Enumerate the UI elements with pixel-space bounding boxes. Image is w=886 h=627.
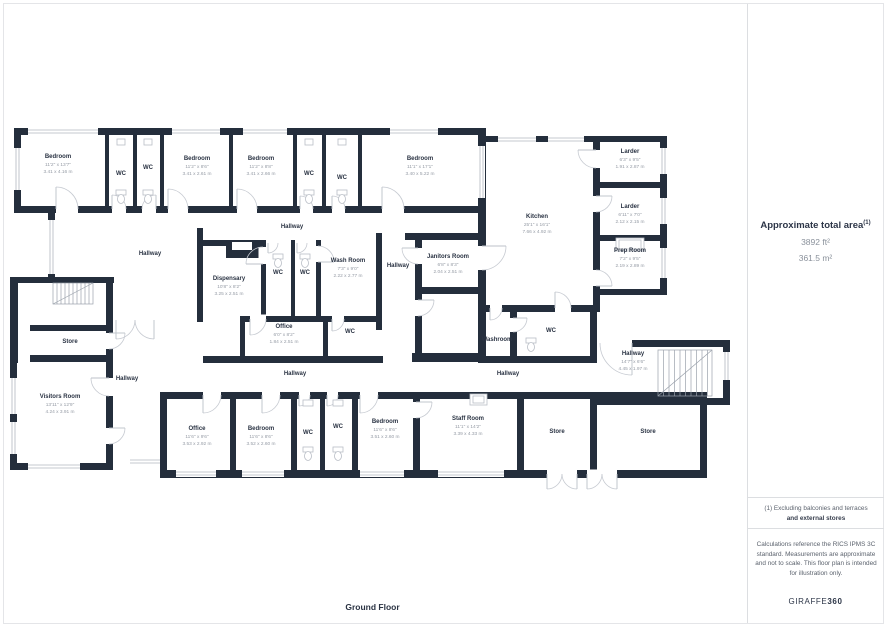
svg-text:11'1" x 14'2": 11'1" x 14'2"	[455, 424, 481, 430]
label-hallway: Hallway	[387, 263, 410, 269]
room-label-staff_room: Staff Room11'1" x 14'2"3.39 x 4.33 m	[452, 416, 484, 437]
room-label-bedroom_t2: Bedroom11'2" x 8'6"3.41 x 2.61 m	[182, 156, 211, 177]
label-store: Store	[640, 429, 656, 435]
svg-text:3.51 x 2.60 m: 3.51 x 2.60 m	[370, 434, 399, 440]
svg-text:Janitors Room: Janitors Room	[427, 254, 469, 260]
svg-text:3.39 x 4.33 m: 3.39 x 4.33 m	[453, 431, 482, 437]
footnote-marker: (1)	[863, 220, 870, 226]
label-hallway: Hallway	[497, 371, 520, 377]
room-label-bedroom_b2: Bedroom11'6" x 8'6"3.51 x 2.60 m	[370, 419, 399, 440]
svg-text:3.25 x 2.51 m: 3.25 x 2.51 m	[214, 291, 243, 297]
side-panel	[747, 4, 884, 623]
svg-text:7'2" x 9'5": 7'2" x 9'5"	[620, 256, 641, 262]
dispensary-counter-slot	[232, 242, 252, 250]
total-area-title: Approximate total area(1)	[747, 220, 884, 231]
room-label-dispensary: Dispensary10'8" x 8'2"3.25 x 2.51 m	[213, 276, 246, 297]
label-wc: WC	[300, 270, 311, 276]
svg-text:2.12 x 2.15 m: 2.12 x 2.15 m	[615, 219, 644, 225]
floor-plan-page: Bedroom11'2" x 13'7"3.41 x 4.16 mBedroom…	[0, 0, 886, 627]
svg-text:Staff Room: Staff Room	[452, 416, 484, 422]
svg-text:Bedroom: Bedroom	[184, 156, 210, 162]
svg-text:6'11" x 7'0": 6'11" x 7'0"	[618, 212, 642, 218]
walls	[10, 128, 730, 478]
room-label-wash_room: Wash Room7'3" x 9'0"2.22 x 2.77 m	[331, 258, 365, 279]
total-area-m: 361.5 m²	[747, 253, 884, 263]
svg-text:3.41 x 2.66 m: 3.41 x 2.66 m	[246, 171, 275, 177]
giraffe360-logo: GIRAFFE360	[747, 597, 884, 606]
disclaimer: Calculations reference the RICS IPMS 3C …	[754, 540, 878, 578]
total-area-ft: 3892 ft²	[747, 237, 884, 247]
label-wc: WC	[143, 165, 154, 171]
room-label-larder_2: Larder6'11" x 7'0"2.12 x 2.15 m	[615, 204, 644, 225]
label-store: Store	[62, 339, 78, 345]
svg-text:11'6" x 8'6": 11'6" x 8'6"	[249, 434, 273, 440]
svg-text:11'2" x 13'7": 11'2" x 13'7"	[45, 162, 71, 168]
svg-text:Office: Office	[188, 426, 206, 432]
svg-text:2.22 x 2.77 m: 2.22 x 2.77 m	[333, 273, 362, 279]
svg-text:2.04 x 2.51 m: 2.04 x 2.51 m	[433, 269, 462, 275]
room-label-bedroom_b1: Bedroom11'6" x 8'6"3.52 x 2.60 m	[246, 426, 275, 447]
svg-text:Bedroom: Bedroom	[45, 154, 71, 160]
svg-text:14'7" x 6'6": 14'7" x 6'6"	[621, 359, 645, 365]
room-label-larder_1: Larder6'3" x 9'5"1.91 x 2.87 m	[615, 149, 644, 170]
label-wc: WC	[116, 171, 127, 177]
svg-text:3.41 x 4.16 m: 3.41 x 4.16 m	[43, 169, 72, 175]
svg-text:Wash Room: Wash Room	[331, 258, 365, 264]
svg-text:Prep Room: Prep Room	[614, 248, 646, 254]
label-wc: WC	[546, 328, 557, 334]
footnote: (1) Excluding balconies and terraces and…	[752, 504, 880, 523]
svg-text:3.40 x 5.22 m: 3.40 x 5.22 m	[405, 171, 434, 177]
label-wc: WC	[333, 424, 344, 430]
svg-text:1.91 x 2.87 m: 1.91 x 2.87 m	[615, 164, 644, 170]
svg-text:Bedroom: Bedroom	[407, 156, 433, 162]
svg-text:6'0" x 8'2": 6'0" x 8'2"	[274, 332, 295, 338]
label-wc: WC	[345, 329, 356, 335]
svg-text:Office: Office	[275, 324, 293, 330]
label-wc: WC	[273, 270, 284, 276]
label-hallway: Hallway	[116, 376, 139, 382]
svg-text:4.45 x 1.97 m: 4.45 x 1.97 m	[618, 366, 647, 372]
svg-text:3.52 x 2.60 m: 3.52 x 2.60 m	[246, 441, 275, 447]
svg-text:1.84 x 2.51 m: 1.84 x 2.51 m	[269, 339, 298, 345]
floor-title: Ground Floor	[0, 602, 745, 612]
svg-text:Dispensary: Dispensary	[213, 276, 246, 282]
room-label-office_mid: Office6'0" x 8'2"1.84 x 2.51 m	[269, 324, 298, 345]
panel-divider	[747, 4, 748, 623]
svg-text:3.41 x 2.61 m: 3.41 x 2.61 m	[182, 171, 211, 177]
svg-text:4.24 x 3.91 m: 4.24 x 3.91 m	[45, 409, 74, 415]
windows	[10, 128, 730, 477]
svg-text:11'6" x 8'6": 11'6" x 8'6"	[373, 427, 397, 433]
svg-text:25'1" x 16'1": 25'1" x 16'1"	[524, 222, 551, 228]
svg-text:Bedroom: Bedroom	[372, 419, 398, 425]
svg-text:Hallway: Hallway	[622, 351, 645, 357]
floor-plan-canvas: Bedroom11'2" x 13'7"3.41 x 4.16 mBedroom…	[0, 0, 745, 627]
label-washroom: Washroom	[482, 337, 513, 343]
label-wc: WC	[337, 175, 348, 181]
svg-text:Bedroom: Bedroom	[248, 426, 274, 432]
room-label-prep_room: Prep Room7'2" x 9'5"2.19 x 2.89 m	[614, 248, 646, 269]
room-label-office_bottom: Office11'6" x 9'6"3.53 x 2.92 m	[182, 426, 211, 447]
svg-text:11'2" x 8'8": 11'2" x 8'8"	[249, 164, 273, 170]
svg-text:Bedroom: Bedroom	[248, 156, 274, 162]
label-wc: WC	[304, 171, 315, 177]
total-area-block: Approximate total area(1) 3892 ft² 361.5…	[747, 220, 884, 263]
label-hallway: Hallway	[139, 251, 162, 257]
room-label-janitors_room: Janitors Room6'8" x 8'3"2.04 x 2.51 m	[427, 254, 469, 275]
svg-text:7.66 x 4.92 m: 7.66 x 4.92 m	[522, 229, 551, 235]
panel-separator-1	[747, 497, 884, 498]
svg-text:11'1" x 17'1": 11'1" x 17'1"	[407, 164, 433, 170]
label-store: Store	[549, 429, 565, 435]
svg-text:7'3" x 9'0": 7'3" x 9'0"	[338, 266, 359, 272]
room-label-hallway_stairs: Hallway14'7" x 6'6"4.45 x 1.97 m	[618, 351, 647, 372]
room-labels: Bedroom11'2" x 13'7"3.41 x 4.16 mBedroom…	[40, 149, 657, 447]
room-label-visitors_room: Visitors Room13'11" x 12'9"4.24 x 3.91 m	[40, 394, 81, 415]
svg-text:3.53 x 2.92 m: 3.53 x 2.92 m	[182, 441, 211, 447]
svg-text:Larder: Larder	[621, 149, 640, 155]
label-wc: WC	[303, 430, 314, 436]
svg-text:2.19 x 2.89 m: 2.19 x 2.89 m	[615, 263, 644, 269]
svg-text:13'11" x 12'9": 13'11" x 12'9"	[46, 402, 75, 408]
room-label-bedroom_t3: Bedroom11'2" x 8'8"3.41 x 2.66 m	[246, 156, 275, 177]
svg-text:11'6" x 9'6": 11'6" x 9'6"	[185, 434, 209, 440]
svg-text:10'8" x 8'2": 10'8" x 8'2"	[217, 284, 241, 290]
room-label-bedroom_t4: Bedroom11'1" x 17'1"3.40 x 5.22 m	[405, 156, 434, 177]
room-label-kitchen: Kitchen25'1" x 16'1"7.66 x 4.92 m	[522, 214, 551, 235]
svg-text:Larder: Larder	[621, 204, 640, 210]
svg-text:Kitchen: Kitchen	[526, 214, 548, 220]
panel-separator-2	[747, 528, 884, 529]
svg-text:6'8" x 8'3": 6'8" x 8'3"	[438, 262, 459, 268]
room-label-bedroom_tl: Bedroom11'2" x 13'7"3.41 x 4.16 m	[43, 154, 72, 175]
svg-text:Visitors Room: Visitors Room	[40, 394, 81, 400]
label-hallway: Hallway	[284, 371, 307, 377]
svg-text:11'2" x 8'6": 11'2" x 8'6"	[185, 164, 209, 170]
svg-text:6'3" x 9'5": 6'3" x 9'5"	[620, 157, 641, 163]
label-hallway: Hallway	[281, 224, 304, 230]
